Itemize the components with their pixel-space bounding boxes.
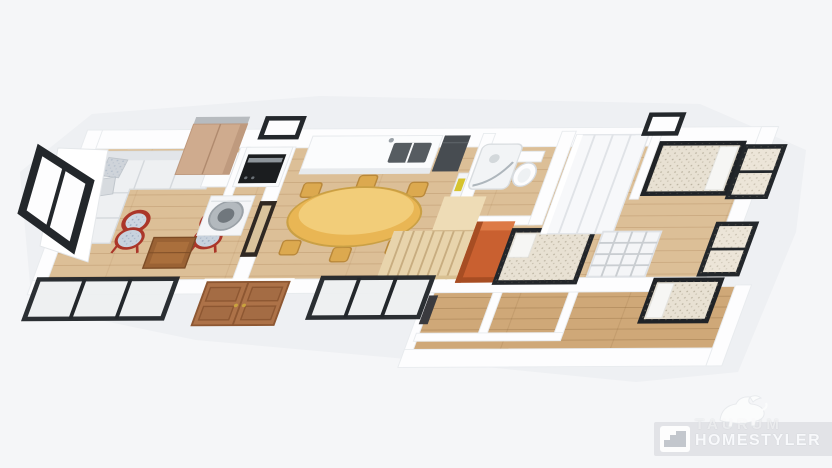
bed-guest xyxy=(495,230,594,283)
single-bed xyxy=(640,280,721,322)
back-small-window-bedroom xyxy=(644,115,683,134)
floorplan-render-canvas[interactable] xyxy=(0,0,832,468)
front-sliding-window-left xyxy=(24,279,177,319)
front-sliding-window-center xyxy=(308,277,433,317)
back-small-window-kitchen xyxy=(261,118,304,137)
floorplan-scene xyxy=(0,0,832,468)
kitchen-counter xyxy=(299,135,443,173)
double-bed xyxy=(643,143,743,194)
